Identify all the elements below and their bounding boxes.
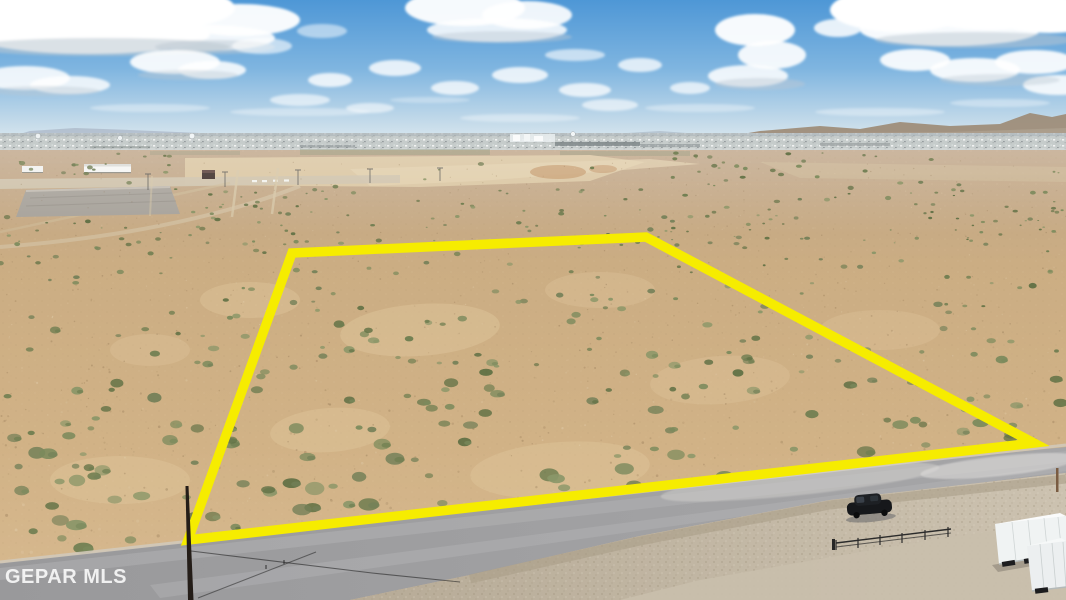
sand-speck: [1027, 404, 1029, 406]
scrub-bush: [14, 437, 22, 441]
sand-speck: [11, 324, 12, 325]
sand-speck: [454, 302, 455, 303]
scrub-bush: [1054, 349, 1059, 352]
scrub-bush: [101, 227, 103, 228]
scrub-bush: [208, 193, 213, 195]
sand-speck: [535, 486, 537, 488]
sand-speck: [230, 294, 232, 296]
sand-speck: [246, 331, 248, 333]
sand-speck: [641, 441, 644, 444]
sand-speck: [458, 333, 460, 335]
sand-speck: [534, 377, 536, 379]
sand-speck: [74, 321, 76, 323]
scrub-bush: [704, 360, 713, 365]
sand-speck: [131, 448, 133, 450]
scrub-bush: [1053, 201, 1056, 202]
scrub-bush: [133, 492, 150, 501]
sand-speck: [673, 315, 675, 317]
scrub-bush: [394, 457, 404, 463]
sand-speck: [15, 446, 17, 448]
sand-speck: [922, 306, 924, 308]
scrub-bush: [805, 335, 813, 340]
sand-speck: [248, 274, 249, 275]
sand-speck: [770, 380, 772, 382]
scrub-bush: [848, 193, 851, 195]
sand-speck: [330, 499, 332, 501]
sand-speck: [87, 207, 88, 208]
sand-speck: [874, 343, 876, 345]
sand-speck: [969, 254, 970, 255]
sand-speck: [164, 246, 165, 247]
scrub-bush: [619, 244, 623, 246]
sand-speck: [517, 216, 518, 217]
sand-speck: [91, 337, 92, 338]
sand-speck: [1025, 398, 1027, 400]
sand-speck: [10, 393, 11, 394]
sand-speck: [156, 220, 157, 221]
scrub-bush: [443, 224, 447, 226]
scrub-bush: [188, 234, 192, 236]
scrub-bush: [80, 452, 87, 456]
sand-speck: [972, 276, 973, 277]
sand-speck: [158, 224, 159, 225]
scrub-bush: [929, 158, 934, 161]
scrub-bush: [35, 230, 39, 232]
scrub-bush: [4, 215, 10, 219]
sand-speck: [753, 401, 755, 403]
scrub-bush: [444, 378, 458, 387]
sand-speck: [48, 465, 50, 467]
sand-speck: [1041, 252, 1042, 253]
sand-speck: [498, 259, 500, 261]
scrub-bush: [669, 387, 676, 392]
sand-speck: [120, 446, 121, 447]
scrub-bush: [569, 270, 574, 273]
scrub-bush: [1055, 211, 1060, 214]
sand-speck: [316, 184, 317, 185]
sand-speck: [566, 360, 567, 361]
scrub-bush: [970, 214, 974, 216]
scrub-bush: [116, 153, 120, 155]
scrub-bush: [478, 162, 484, 166]
sand-speck: [685, 162, 686, 163]
sand-speck: [325, 389, 327, 391]
sand-speck: [247, 500, 248, 501]
sand-speck: [437, 233, 438, 234]
scrub-bush: [346, 214, 349, 216]
scrub-bush: [841, 265, 848, 269]
scrub-bush: [169, 257, 172, 259]
scrub-bush: [657, 236, 660, 238]
sand-speck: [923, 448, 925, 450]
scrub-bush: [712, 211, 717, 214]
sand-speck: [337, 217, 338, 218]
sand-speck: [652, 336, 653, 337]
sand-speck: [868, 177, 869, 178]
scrub-bush: [53, 255, 59, 259]
scrub-bush: [382, 443, 391, 448]
sand-speck: [316, 307, 317, 308]
scrub-bush: [800, 238, 804, 240]
scrub-bush: [669, 427, 678, 432]
scrub-bush: [614, 454, 621, 458]
scrub-bush: [923, 212, 926, 214]
scrub-bush: [61, 171, 66, 174]
scrub-bush: [57, 535, 66, 541]
sand-speck: [0, 415, 2, 417]
sand-speck: [416, 360, 418, 362]
scrub-bush: [395, 356, 401, 359]
sand-speck: [812, 227, 813, 228]
scrub-bush: [623, 446, 631, 450]
sand-speck: [907, 415, 909, 417]
scrub-bush: [740, 176, 746, 179]
scrub-bush: [92, 416, 100, 420]
sand-speck: [672, 340, 673, 341]
sand-speck: [565, 372, 567, 374]
sand-speck: [329, 403, 331, 405]
sand-speck: [588, 479, 591, 482]
scrub-bush: [339, 324, 345, 327]
sand-speck: [584, 367, 586, 369]
sand-speck: [817, 339, 819, 341]
scrub-bush: [405, 336, 414, 341]
scrub-bush: [101, 406, 112, 412]
scrub-bush: [169, 311, 175, 315]
scrub-bush: [214, 218, 220, 221]
sand-speck: [625, 188, 626, 189]
sand-speck: [87, 499, 88, 500]
scrub-bush: [707, 183, 710, 185]
scrub-bush: [1058, 172, 1060, 173]
scrub-bush: [437, 500, 447, 506]
sand-speck: [81, 383, 82, 384]
sand-speck: [5, 514, 8, 517]
scrub-bush: [148, 251, 154, 255]
trailer-2: [1027, 538, 1066, 594]
scrub-bush: [463, 421, 478, 428]
sand-speck: [743, 199, 744, 200]
scrub-bush: [1047, 270, 1053, 274]
scrub-bush: [863, 169, 868, 172]
scrub-bush: [647, 227, 653, 231]
scrub-bush: [606, 388, 612, 392]
scrub-bush: [763, 264, 766, 266]
sand-speck: [579, 349, 581, 351]
sand-speck: [792, 159, 793, 160]
scrub-bush: [966, 276, 971, 279]
sand-speck: [406, 256, 407, 257]
scrub-bush: [933, 302, 942, 307]
scrub-bush: [454, 252, 461, 256]
scrub-bush: [966, 239, 969, 240]
sand-speck: [274, 190, 275, 191]
sand-speck: [481, 323, 483, 325]
sand-speck: [242, 312, 243, 313]
sand-speck: [385, 502, 388, 505]
scrub-bush: [28, 315, 34, 319]
sand-speck: [871, 315, 873, 317]
sand-speck: [409, 408, 410, 409]
scrub-bush: [14, 242, 20, 246]
sand-speck: [743, 227, 744, 228]
scrub-bush: [804, 237, 810, 240]
sand-speck: [102, 366, 104, 368]
sand-speck: [75, 235, 76, 236]
sand-speck: [15, 198, 16, 199]
sand-speck: [803, 307, 804, 308]
sand-speck: [98, 528, 101, 531]
scrub-bush: [253, 205, 258, 208]
scrub-bush: [665, 230, 668, 232]
sand-speck: [824, 256, 825, 257]
scrub-bush: [254, 192, 257, 194]
scrub-bush: [796, 165, 802, 168]
scrub-bush: [981, 305, 985, 307]
sand-speck: [180, 340, 181, 341]
sand-speck: [737, 264, 738, 265]
scrub-bush: [790, 447, 798, 452]
listing-photo: GEPAR MLS: [0, 0, 1066, 600]
sand-speck: [273, 271, 275, 273]
scrub-bush: [699, 384, 708, 390]
sand-speck: [631, 342, 633, 344]
sand-speck: [158, 426, 161, 429]
sand-speck: [501, 160, 502, 161]
scrub-bush: [210, 212, 214, 215]
sand-speck: [884, 283, 885, 284]
scrub-bush: [1042, 226, 1045, 228]
sand-speck: [1008, 186, 1009, 187]
scrub-bush: [452, 361, 458, 365]
sand-speck: [707, 234, 708, 235]
sand-speck: [131, 532, 132, 533]
sand-speck: [543, 426, 546, 429]
sand-speck: [365, 311, 367, 313]
scrub-bush: [615, 463, 634, 474]
sand-speck: [104, 191, 105, 192]
scrub-bush: [176, 424, 183, 428]
scrub-bush: [437, 362, 442, 365]
sand-speck: [104, 448, 105, 449]
sand-speck: [508, 253, 509, 254]
scrub-bush: [72, 464, 80, 469]
sand-speck: [243, 301, 245, 303]
scrub-bush: [110, 379, 123, 388]
scrub-bush: [206, 242, 210, 245]
sand-speck: [8, 473, 10, 475]
scrub-bush: [160, 232, 162, 233]
sand-speck: [1, 254, 2, 255]
sand-speck: [234, 366, 235, 367]
scrub-bush: [29, 528, 38, 534]
sand-speck: [976, 393, 977, 394]
sand-speck: [424, 326, 426, 328]
sand-speck: [585, 271, 586, 272]
scrub-bush: [768, 209, 771, 211]
sand-speck: [490, 382, 491, 383]
scrub-bush: [261, 486, 275, 493]
sand-speck: [86, 406, 87, 407]
sand-speck: [676, 221, 677, 222]
scrub-bush: [931, 203, 936, 206]
sand-speck: [78, 267, 80, 269]
scrub-bush: [919, 422, 928, 428]
sand-speck: [558, 325, 560, 327]
scrub-bush: [200, 335, 205, 337]
scrub-bush: [677, 265, 681, 268]
sand-speck: [686, 184, 687, 185]
sand-speck: [128, 486, 130, 488]
sand-speck: [743, 191, 744, 192]
scrub-bush: [235, 527, 241, 530]
sand-speck: [656, 474, 659, 477]
scrub-bush: [765, 237, 770, 240]
scrub-bush: [824, 198, 830, 202]
scrub-bush: [1051, 230, 1056, 233]
sand-speck: [561, 427, 563, 429]
sand-speck: [136, 520, 139, 523]
sand-speck: [209, 237, 210, 238]
scrub-bush: [590, 167, 594, 170]
scrub-bush: [934, 192, 938, 194]
sand-speck: [11, 219, 12, 220]
sand-speck: [331, 184, 332, 185]
scrub-bush: [424, 261, 430, 265]
sand-speck: [526, 184, 527, 185]
sand-speck: [612, 163, 613, 164]
scrub-bush: [956, 218, 959, 220]
scrub-bush: [89, 467, 95, 470]
sand-speck: [703, 464, 705, 466]
sand-speck: [314, 478, 316, 480]
sand-speck: [457, 471, 459, 473]
sand-speck: [703, 438, 705, 440]
sand-speck: [312, 230, 313, 231]
scrub-bush: [55, 329, 61, 332]
scrub-bush: [848, 186, 854, 190]
scrub-bush: [785, 152, 791, 155]
sand-speck: [276, 357, 278, 359]
scrub-bush: [674, 365, 681, 369]
sand-speck: [775, 290, 776, 291]
scrub-bush: [69, 475, 85, 486]
scrub-bush: [45, 502, 59, 510]
sand-speck: [316, 360, 318, 362]
sand-speck: [376, 243, 377, 244]
scrub-bush: [260, 208, 263, 210]
sand-speck: [808, 461, 810, 463]
scrub-bush: [433, 240, 435, 241]
scrub-bush: [955, 229, 957, 230]
scrub-bush: [232, 314, 240, 319]
sand-speck: [157, 374, 159, 376]
scrub-bush: [1005, 206, 1009, 208]
sand-speck: [375, 347, 376, 348]
scrub-bush: [590, 297, 598, 302]
sand-speck: [536, 180, 537, 181]
scrub-bush: [349, 504, 356, 508]
scrub-bush: [527, 230, 531, 233]
scrub-bush: [805, 410, 818, 418]
sand-speck: [289, 334, 291, 336]
scrub-bush: [702, 322, 712, 327]
sand-speck: [584, 481, 586, 483]
scrub-bush: [857, 265, 863, 269]
sand-speck: [249, 396, 251, 398]
scrub-bush: [333, 185, 339, 189]
scrub-bush: [251, 386, 263, 393]
scrub-bush: [798, 198, 802, 201]
sand-speck: [916, 235, 917, 236]
sand-speck: [727, 226, 728, 227]
sand-speck: [892, 442, 894, 444]
sand-speck: [1003, 417, 1004, 418]
sand-speck: [806, 343, 808, 345]
sand-speck: [73, 487, 75, 489]
sand-speck: [492, 174, 493, 175]
sand-speck: [182, 455, 184, 457]
scrub-bush: [652, 354, 659, 358]
sand-speck: [738, 216, 739, 217]
sand-speck: [241, 303, 242, 304]
scrub-bush: [305, 240, 309, 243]
sand-speck: [611, 436, 613, 438]
sand-speck: [156, 371, 157, 372]
scrub-bush: [834, 197, 837, 199]
scrub-bush: [1056, 378, 1063, 382]
scrub-bush: [196, 226, 200, 229]
sand-speck: [758, 250, 759, 251]
scrub-bush: [310, 211, 313, 213]
sand-speck: [722, 229, 723, 230]
sand-speck: [79, 538, 80, 539]
scrub-bush: [425, 320, 430, 323]
scrub-bush: [875, 156, 878, 158]
sand-speck: [338, 206, 339, 207]
sand-speck: [724, 393, 726, 395]
sand-speck: [150, 299, 152, 301]
sand-speck: [638, 214, 639, 215]
scrub-bush: [76, 523, 87, 529]
scrub-bush: [244, 204, 248, 207]
scrub-bush: [648, 406, 664, 414]
scrub-bush: [567, 318, 576, 324]
sand-speck: [47, 414, 48, 415]
sand-speck: [961, 187, 962, 188]
sand-speck: [332, 224, 333, 225]
scrub-bush: [944, 275, 950, 279]
scrub-bush: [87, 165, 93, 169]
sand-speck: [630, 189, 631, 190]
sand-speck: [638, 320, 640, 322]
sand-speck: [613, 414, 614, 415]
sand-speck: [793, 354, 794, 355]
sand-speck: [452, 422, 454, 424]
scrub-bush: [507, 263, 513, 266]
scrub-bush: [291, 481, 301, 486]
scrub-bush: [587, 348, 592, 351]
scrub-bush: [770, 169, 776, 173]
scrub-bush: [734, 164, 739, 168]
sand-speck: [67, 302, 69, 304]
sand-speck: [965, 214, 966, 215]
sand-speck: [293, 162, 294, 163]
sand-speck: [647, 221, 648, 222]
sand-speck: [102, 275, 104, 277]
sand-speck: [482, 182, 483, 183]
sand-speck: [108, 371, 110, 373]
